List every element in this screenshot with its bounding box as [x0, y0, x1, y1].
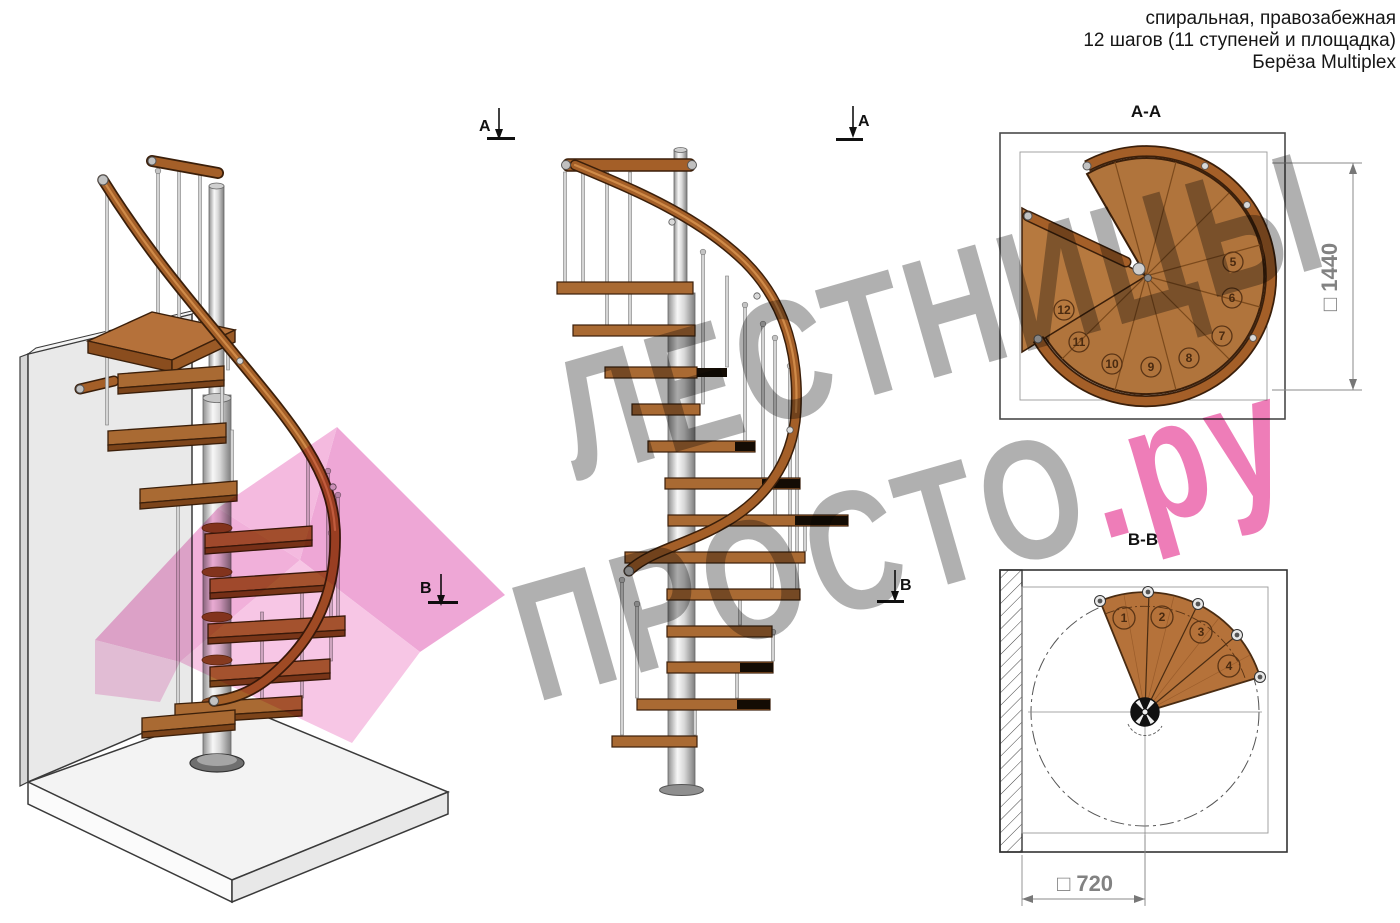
- svg-text:5: 5: [1230, 255, 1237, 269]
- title-line-material: Берёза Multiplex: [1083, 52, 1396, 74]
- plan-bb-stair-fan: [1095, 587, 1266, 736]
- center-pole-elevation: [660, 148, 704, 796]
- svg-text:8: 8: [1186, 351, 1193, 365]
- view-plan-aa: А-А: [980, 95, 1395, 440]
- title-line-type: спиральная, правозабежная: [1083, 8, 1396, 30]
- section-marker-a-left: А: [479, 108, 515, 140]
- section-marker-b-right: В: [877, 570, 912, 603]
- svg-text:1: 1: [1121, 611, 1128, 625]
- svg-text:3: 3: [1198, 625, 1205, 639]
- svg-text:А: А: [479, 118, 491, 135]
- plan-aa-title: А-А: [1131, 102, 1161, 121]
- view-elevation: А В: [520, 88, 945, 828]
- svg-text:6: 6: [1229, 291, 1236, 305]
- svg-text:□ 1440: □ 1440: [1317, 243, 1342, 311]
- section-marker-a-right: А: [836, 106, 870, 141]
- drawing-sheet: В А: [0, 0, 1400, 923]
- title-line-steps: 12 шагов (11 ступеней и площадка): [1083, 30, 1396, 52]
- svg-text:В: В: [900, 577, 912, 594]
- svg-text:4: 4: [1226, 659, 1233, 673]
- svg-text:9: 9: [1148, 360, 1155, 374]
- plan-bb-wall-hatch: [1000, 570, 1022, 852]
- title-block: спиральная, правозабежная 12 шагов (11 с…: [1083, 8, 1396, 74]
- plan-aa-stair: [1022, 151, 1271, 401]
- svg-text:□ 720: □ 720: [1057, 871, 1113, 896]
- plan-bb-title: В-В: [1128, 530, 1158, 549]
- view-plan-bb: В-В: [980, 505, 1310, 923]
- view-3d: В А: [5, 98, 517, 910]
- svg-text:10: 10: [1105, 357, 1119, 371]
- svg-text:2: 2: [1159, 610, 1166, 624]
- svg-text:11: 11: [1073, 335, 1086, 349]
- plan-bb-dimension: □ 720: [1022, 835, 1145, 906]
- svg-text:12: 12: [1057, 303, 1071, 317]
- svg-text:7: 7: [1219, 329, 1226, 343]
- svg-text:А: А: [858, 113, 870, 130]
